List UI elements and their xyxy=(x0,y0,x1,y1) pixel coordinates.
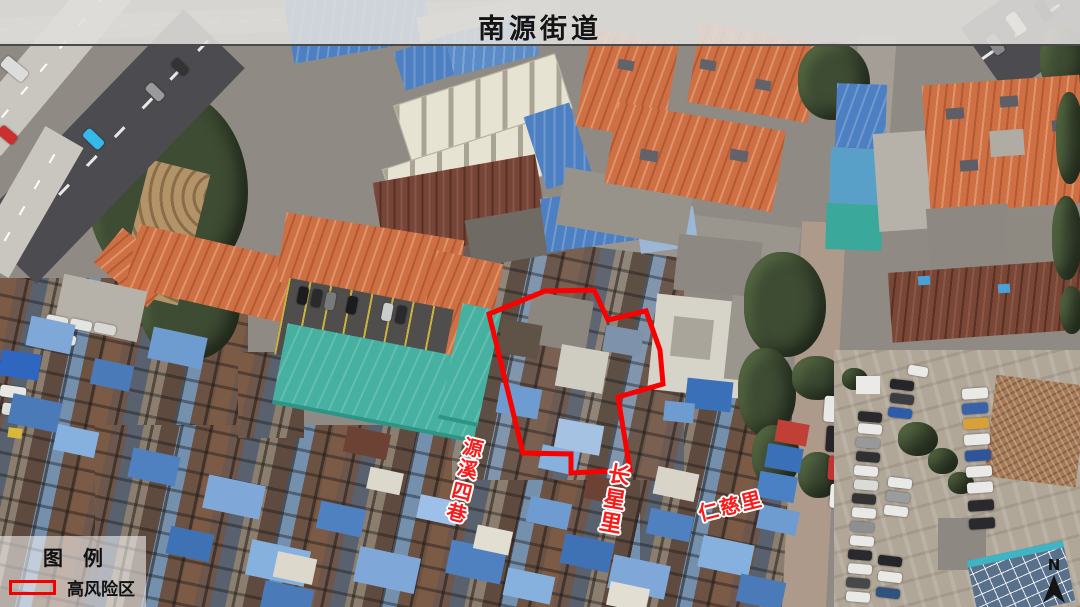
compass: N xyxy=(1034,556,1074,603)
high-risk-swatch-icon xyxy=(9,580,56,595)
high-risk-zone-outline xyxy=(489,290,663,473)
north-arrow-icon xyxy=(1042,575,1066,603)
title-band: 南源街道 xyxy=(0,0,1080,46)
legend-item-high-risk: 高风险区 xyxy=(0,573,146,600)
high-risk-zone-overlay xyxy=(0,0,1080,607)
map: 源溪四巷 长星里 仁慈里 南源街道 图 例 高风险区 N xyxy=(0,0,1080,607)
north-label: N xyxy=(1034,556,1074,574)
legend-title: 图 例 xyxy=(0,542,146,571)
page-title: 南源街道 xyxy=(0,7,1080,46)
legend: 图 例 高风险区 xyxy=(0,536,146,607)
legend-item-label: 高风险区 xyxy=(67,575,135,600)
